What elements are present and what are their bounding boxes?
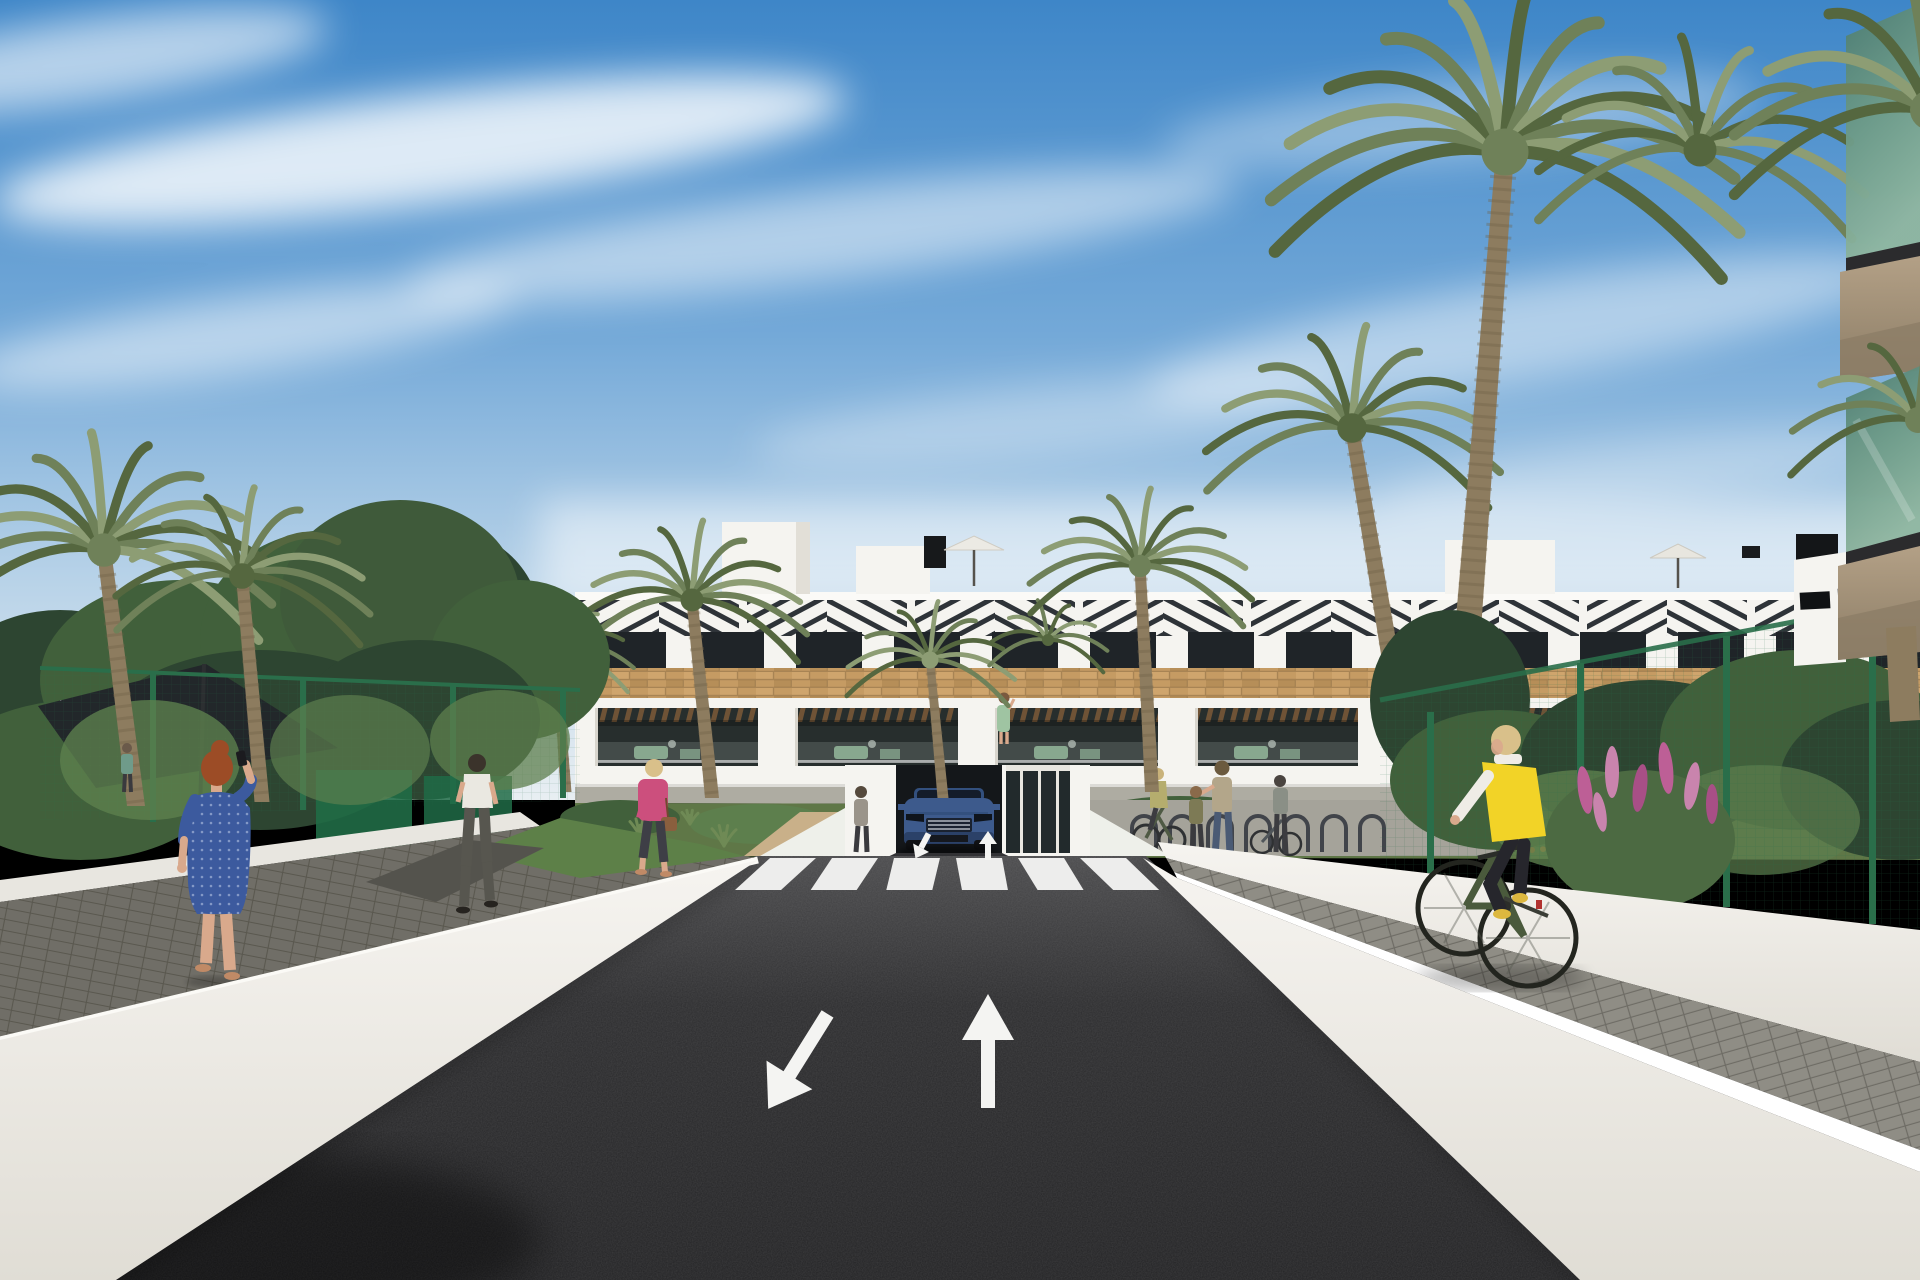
porch-post: [958, 704, 978, 768]
render-stage: 3D architectural render: new-build white…: [0, 0, 1920, 1280]
window: [698, 632, 764, 668]
chevron-module: [827, 600, 911, 636]
wood-pergola: [1198, 706, 1358, 722]
chevron-module: [1247, 600, 1331, 636]
chevron-pergola-band: [571, 600, 1920, 636]
palm-crown-center: [87, 533, 121, 567]
wood-pergola: [598, 706, 758, 722]
palm-crown-center: [1337, 413, 1367, 443]
chimney-vent: [924, 536, 946, 568]
wood-pergola: [998, 706, 1158, 722]
window: [1286, 632, 1352, 668]
palm-crown-center: [1684, 134, 1717, 167]
porch-post: [758, 704, 778, 768]
wall-vent: [1800, 591, 1831, 610]
porch-module: [776, 698, 980, 768]
palm-crown-center: [681, 589, 704, 612]
porch-beam: [576, 698, 780, 708]
crosswalk-stripe: [956, 858, 1008, 890]
glass-balustrade: [998, 742, 1158, 762]
palm-trunk-corner: [1886, 626, 1920, 722]
chevron-module: [1079, 600, 1163, 636]
window: [1188, 632, 1254, 668]
palm-crown-center: [1482, 129, 1529, 176]
palm-crown-center: [229, 563, 255, 589]
porch-post: [1158, 704, 1178, 768]
glass-balustrade: [1198, 742, 1358, 762]
porch-module: [1176, 698, 1380, 768]
tail-light: [1536, 900, 1542, 909]
chevron-module: [1583, 600, 1667, 636]
porch-module: [576, 698, 780, 768]
palm-crown-center: [1129, 555, 1151, 577]
palm-crown-center: [922, 652, 939, 669]
glass-balustrade: [598, 742, 758, 762]
porch-beam: [1176, 698, 1380, 708]
porch-beam: [776, 698, 980, 708]
chevron-module: [1499, 600, 1583, 636]
crosswalk-stripe: [886, 858, 940, 890]
entrance-storefront: [1006, 765, 1070, 853]
palm-crown-center: [1042, 634, 1054, 646]
scene-render: 3D architectural render: new-build white…: [0, 0, 1920, 1280]
